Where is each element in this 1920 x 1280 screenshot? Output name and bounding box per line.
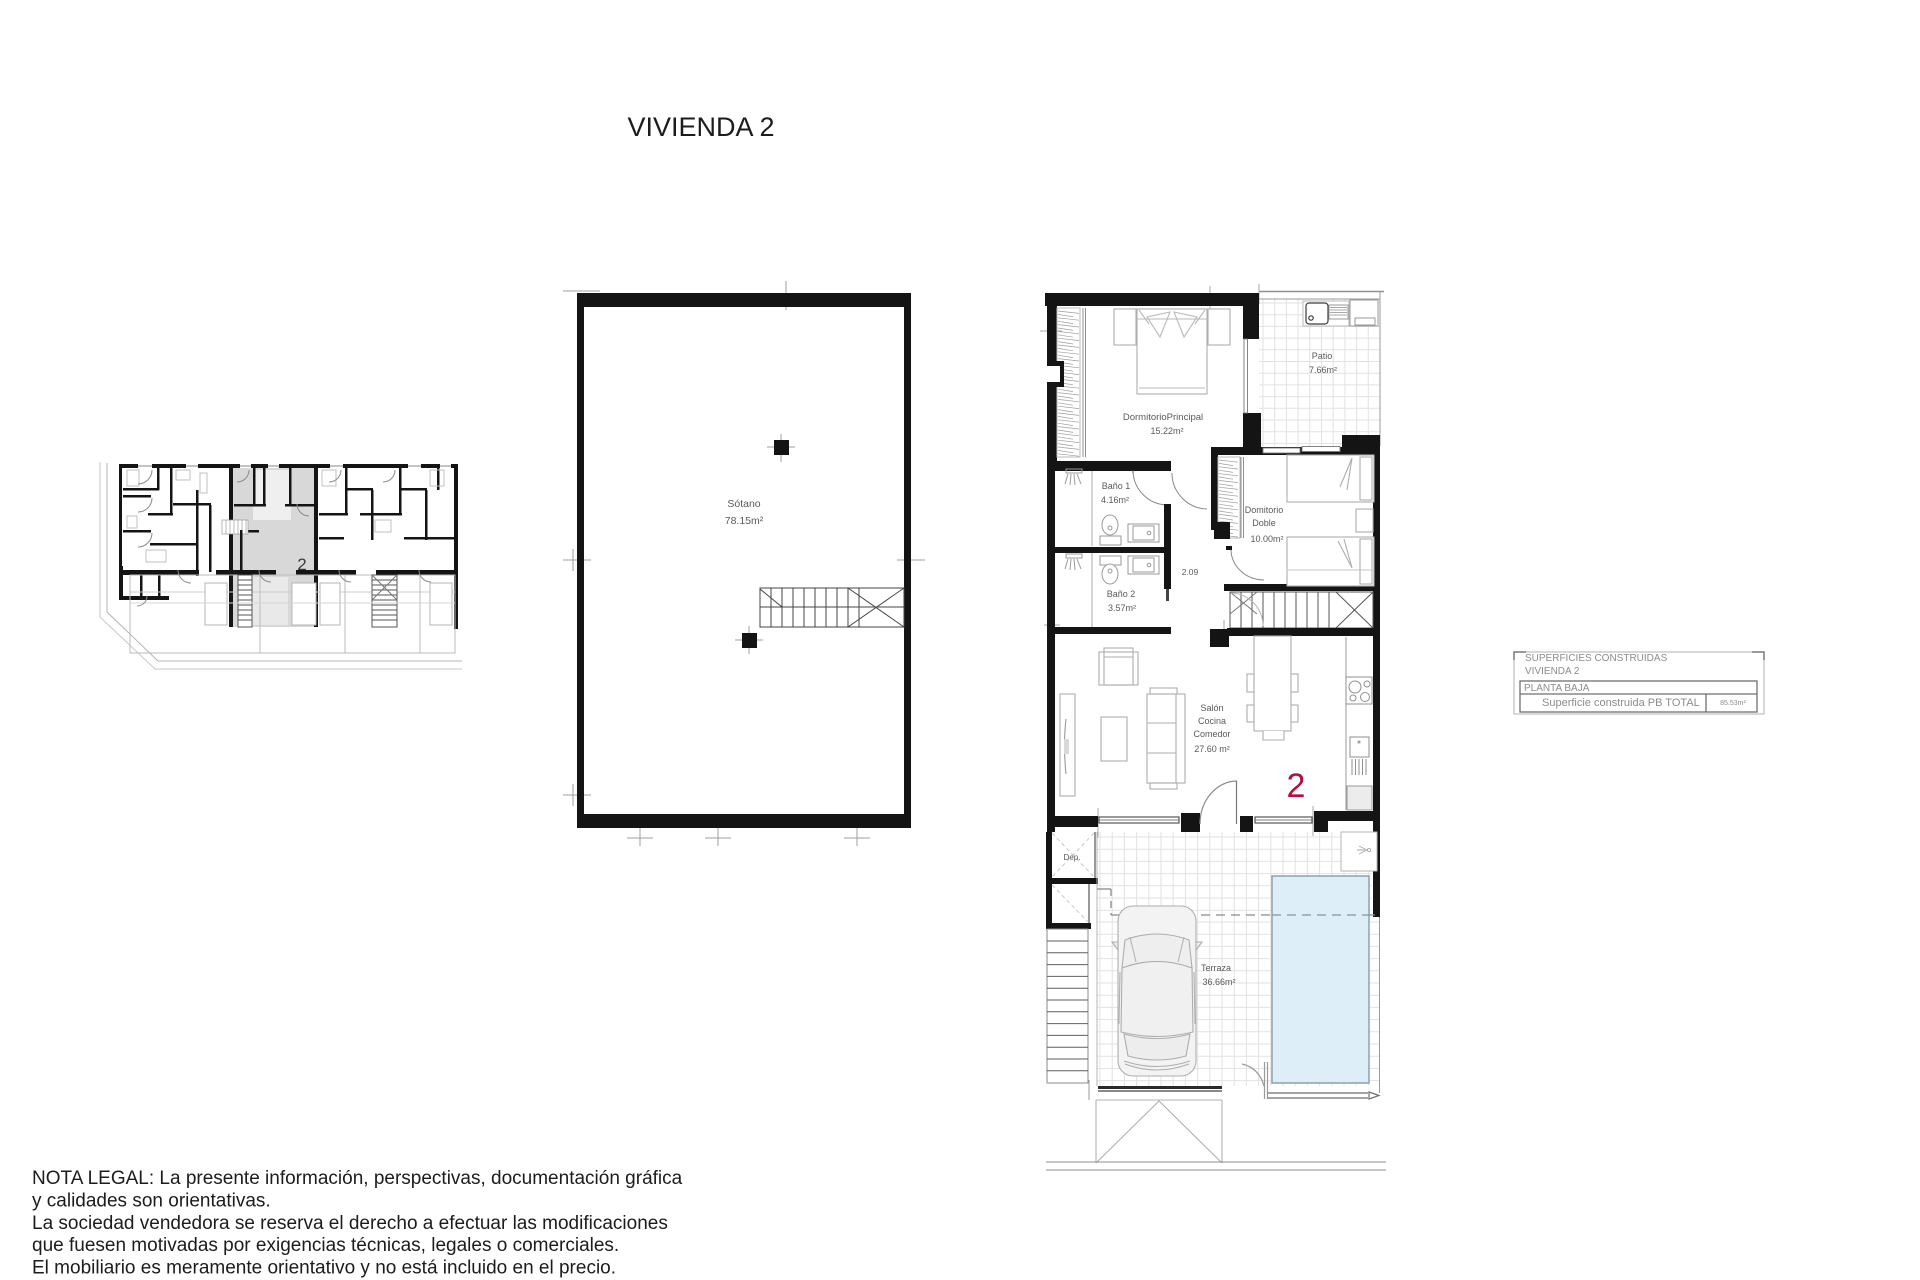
svg-text:DormitorioPrincipal: DormitorioPrincipal xyxy=(1123,412,1203,423)
svg-text:Baño 1: Baño 1 xyxy=(1102,481,1131,491)
svg-text:El mobiliario es meramente ori: El mobiliario es meramente orientativo y… xyxy=(32,1258,616,1279)
svg-text:Cocina: Cocina xyxy=(1198,716,1226,726)
svg-text:7.66m²: 7.66m² xyxy=(1309,365,1337,375)
svg-text:Patio: Patio xyxy=(1312,351,1333,361)
svg-text:2: 2 xyxy=(297,555,306,574)
svg-text:Terraza: Terraza xyxy=(1201,963,1231,973)
svg-text:NOTA LEGAL: La presente inform: NOTA LEGAL: La presente información, per… xyxy=(32,1168,683,1189)
svg-text:4.16m²: 4.16m² xyxy=(1101,495,1129,505)
svg-text:y calidades son orientativas.: y calidades son orientativas. xyxy=(32,1190,271,1211)
svg-text:15.22m²: 15.22m² xyxy=(1150,426,1183,436)
svg-text:Superficie construida PB TOTAL: Superficie construida PB TOTAL xyxy=(1542,697,1700,709)
svg-text:VIVIENDA 2: VIVIENDA 2 xyxy=(627,112,774,142)
svg-text:Baño 2: Baño 2 xyxy=(1107,589,1136,599)
svg-text:La sociedad vendedora se reser: La sociedad vendedora se reserva el dere… xyxy=(32,1213,668,1234)
svg-text:SUPERFICIES CONSTRUIDAS: SUPERFICIES CONSTRUIDAS xyxy=(1525,653,1668,664)
svg-text:Comedor: Comedor xyxy=(1193,729,1230,739)
svg-text:10.00m²: 10.00m² xyxy=(1250,534,1283,544)
svg-text:2: 2 xyxy=(1287,767,1306,805)
svg-text:3.57m²: 3.57m² xyxy=(1108,603,1136,613)
svg-text:Dep.: Dep. xyxy=(1064,853,1081,862)
svg-text:78.15m²: 78.15m² xyxy=(725,515,764,527)
svg-text:85.53m²: 85.53m² xyxy=(1720,700,1746,707)
svg-text:Salón: Salón xyxy=(1200,703,1223,713)
svg-text:36.66m²: 36.66m² xyxy=(1202,977,1235,987)
svg-text:Sótano: Sótano xyxy=(727,498,760,510)
svg-text:27.60 m²: 27.60 m² xyxy=(1194,744,1230,754)
svg-text:que fuesen motivadas por exige: que fuesen motivadas por exigencias técn… xyxy=(32,1235,619,1256)
svg-text:VIVIENDA 2: VIVIENDA 2 xyxy=(1525,666,1580,677)
svg-text:Doble: Doble xyxy=(1252,518,1276,528)
svg-text:PLANTA BAJA: PLANTA BAJA xyxy=(1524,683,1590,694)
svg-text:Domitorio: Domitorio xyxy=(1245,505,1284,515)
svg-text:2.09: 2.09 xyxy=(1182,567,1199,577)
